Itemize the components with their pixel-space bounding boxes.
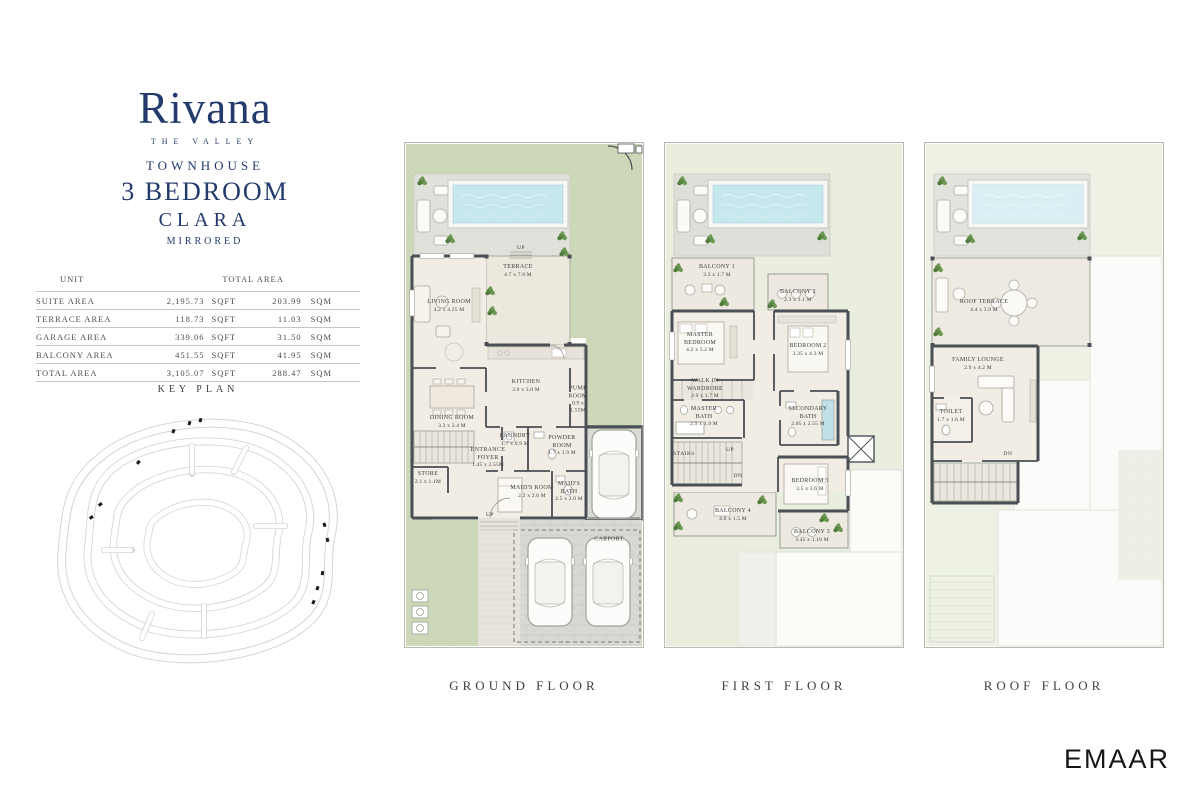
emaar-logo: EMAAR	[1064, 744, 1170, 775]
brand-tagline: THE VALLEY	[88, 137, 322, 146]
ground-floor-plan: TERRACE4.7 x 7.8 M UP LIVING ROOM4.2 x 4…	[402, 140, 646, 650]
row-sqft-unit: SQFT	[204, 350, 246, 360]
tiled-roof	[1118, 450, 1162, 580]
key-plan-map	[42, 408, 354, 680]
caption-ground-floor: GROUND FLOOR	[402, 678, 646, 694]
room-label-master-bedroom: MASTER BEDROOM4.2 x 5.2 M	[678, 332, 722, 354]
room-label-maids-bath: MAID'S BATH2.5 x 2.0 M	[554, 481, 584, 503]
unit-title-block: TOWNHOUSE 3 BEDROOM CLARA MIRRORED	[88, 158, 322, 247]
row-sqm-unit: SQM	[302, 350, 360, 360]
room-label-powder: POWDER ROOM1.7 x 1.9 M	[546, 435, 578, 457]
table-row: TERRACE AREA 118.73 SQFT 11.03 SQM	[36, 309, 360, 327]
row-sqm-unit: SQM	[302, 296, 360, 306]
room-label-dining: DINING ROOM3.3 x 2.4 M	[421, 415, 483, 429]
staircase	[934, 463, 1018, 501]
row-sqft: 2,195.73	[146, 296, 204, 306]
brochure-page: Rivana THE VALLEY TOWNHOUSE 3 BEDROOM CL…	[0, 0, 1199, 800]
row-label: TERRACE AREA	[36, 314, 146, 324]
row-sqm-unit: SQM	[302, 368, 360, 378]
area-table: UNIT TOTAL AREA SUITE AREA 2,195.73 SQFT…	[36, 272, 360, 382]
room-label-wardrobe: WALK IN WARDROBE2.9 x 1.7 M	[682, 378, 728, 400]
table-row: TOTAL AREA 3,105.07 SQFT 288.47 SQM	[36, 363, 360, 382]
ground-floor-drawing	[402, 140, 646, 650]
kitchen-counter	[488, 347, 584, 359]
carport-car	[526, 538, 575, 626]
row-sqm: 288.47	[247, 368, 302, 378]
room-label-secondary-bath: SECONDARY BATH2.05 x 2.55 M	[784, 406, 832, 428]
unit-model: CLARA	[88, 209, 322, 232]
header-total-area: TOTAL AREA	[146, 274, 360, 284]
room-label-bedroom3: BEDROOM 33.5 x 3.6 M	[780, 478, 840, 492]
row-sqm: 41.95	[247, 350, 302, 360]
row-sqm: 31.50	[247, 332, 302, 342]
caption-first-floor: FIRST FLOOR	[662, 678, 906, 694]
row-sqft-unit: SQFT	[204, 314, 246, 324]
row-label: GARAGE AREA	[36, 332, 146, 342]
room-label-terrace: TERRACE4.7 x 7.8 M	[488, 264, 548, 278]
unit-type: TOWNHOUSE	[88, 158, 322, 174]
room-label-pump: PUMP ROOM0.9 x 1.55M	[565, 386, 591, 415]
table-row: GARAGE AREA 339.06 SQFT 31.50 SQM	[36, 327, 360, 345]
label-dn: DN	[1004, 451, 1013, 457]
room-label-roof-terrace: ROOF TERRACE4.4 x 3.9 M	[949, 299, 1019, 313]
row-label: SUITE AREA	[36, 296, 146, 306]
key-plan-title: KEY PLAN	[88, 384, 308, 395]
row-sqm-unit: SQM	[302, 332, 360, 342]
table-row: BALCONY AREA 451.55 SQFT 41.95 SQM	[36, 345, 360, 363]
unit-bedrooms: 3 BEDROOM	[88, 177, 322, 207]
brand-block: Rivana THE VALLEY	[88, 86, 322, 146]
room-label-maids-room: MAID'S ROOM2.2 x 2.6 M	[502, 485, 562, 499]
room-label-balcony3: BALCONY 33.45 x 1.18 M	[782, 529, 842, 543]
carport-car	[584, 538, 633, 626]
table-row: SUITE AREA 2,195.73 SQFT 203.99 SQM	[36, 291, 360, 309]
row-sqft: 118.73	[146, 314, 204, 324]
window	[670, 332, 675, 360]
area-table-header: UNIT TOTAL AREA	[36, 272, 360, 291]
label-up: UP	[486, 512, 494, 518]
row-sqft: 3,105.07	[146, 368, 204, 378]
row-label: TOTAL AREA	[36, 368, 146, 378]
label-stairs: STAIRS	[673, 451, 695, 457]
window	[930, 366, 935, 392]
room-label-carport: CARPORT	[579, 536, 639, 544]
window	[846, 340, 851, 370]
room-label-kitchen: KITCHEN3.0 x 3.0 M	[500, 379, 552, 393]
utility-units	[412, 590, 428, 634]
brand-logo: Rivana	[88, 86, 322, 131]
room-label-laundry: LAUNDRY1.7 x 0.9 M	[491, 433, 539, 447]
shaft	[848, 436, 874, 462]
swimming-pool	[448, 180, 568, 228]
roof-floor-plan: ROOF TERRACE4.4 x 3.9 M FAMILY LOUNGE2.9…	[922, 140, 1166, 650]
room-label-balcony4: BALCONY 44.0 x 1.5 M	[703, 508, 763, 522]
room-label-balcony1: BALCONY 13.3 x 1.7 M	[687, 264, 747, 278]
row-sqm-unit: SQM	[302, 314, 360, 324]
header-unit: UNIT	[36, 274, 146, 284]
row-sqft-unit: SQFT	[204, 332, 246, 342]
row-sqm: 11.03	[247, 314, 302, 324]
room-label-toilet: TOILET1.7 x 1.6 M	[934, 409, 968, 423]
window	[846, 470, 851, 496]
label-up: UP	[726, 447, 734, 453]
row-sqft-unit: SQFT	[204, 368, 246, 378]
roof-floor-drawing	[922, 140, 1166, 650]
row-sqft-unit: SQFT	[204, 296, 246, 306]
room-label-bedroom2: BEDROOM 23.35 x 4.3 M	[778, 343, 838, 357]
unit-variant: MIRRORED	[88, 236, 322, 247]
caption-roof-floor: ROOF FLOOR	[922, 678, 1166, 694]
row-sqft: 451.55	[146, 350, 204, 360]
room-label-store: STORE2.1 x 1.1M	[408, 471, 448, 485]
first-floor-plan: BALCONY 13.3 x 1.7 M BALCONY 22.3 x 1.1 …	[662, 140, 906, 650]
row-sqft: 339.06	[146, 332, 204, 342]
room-label-balcony2: BALCONY 22.3 x 1.1 M	[768, 289, 828, 303]
room-label-family-lounge: FAMILY LOUNGE2.9 x 4.2 M	[938, 357, 1018, 371]
garage-car	[590, 430, 639, 518]
row-label: BALCONY AREA	[36, 350, 146, 360]
row-sqm: 203.99	[247, 296, 302, 306]
label-dn: DN	[734, 473, 743, 479]
room-label-foyer: ENTRANCE FOYER1.45 x 2.55M	[467, 447, 509, 469]
room-label-living: LIVING ROOM4.2 x 4.25 M	[418, 299, 480, 313]
staircase	[414, 431, 474, 463]
room-label-master-bath: MASTER BATH2.9 x 1.9 M	[687, 406, 721, 428]
label-up: UP	[517, 245, 525, 251]
